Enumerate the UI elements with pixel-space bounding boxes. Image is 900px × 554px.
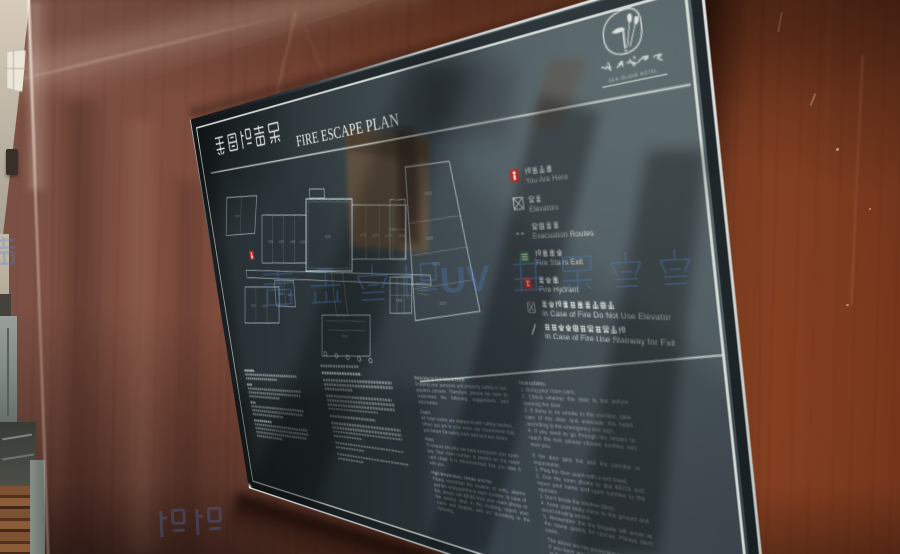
svg-text:UV: UV	[439, 257, 491, 301]
